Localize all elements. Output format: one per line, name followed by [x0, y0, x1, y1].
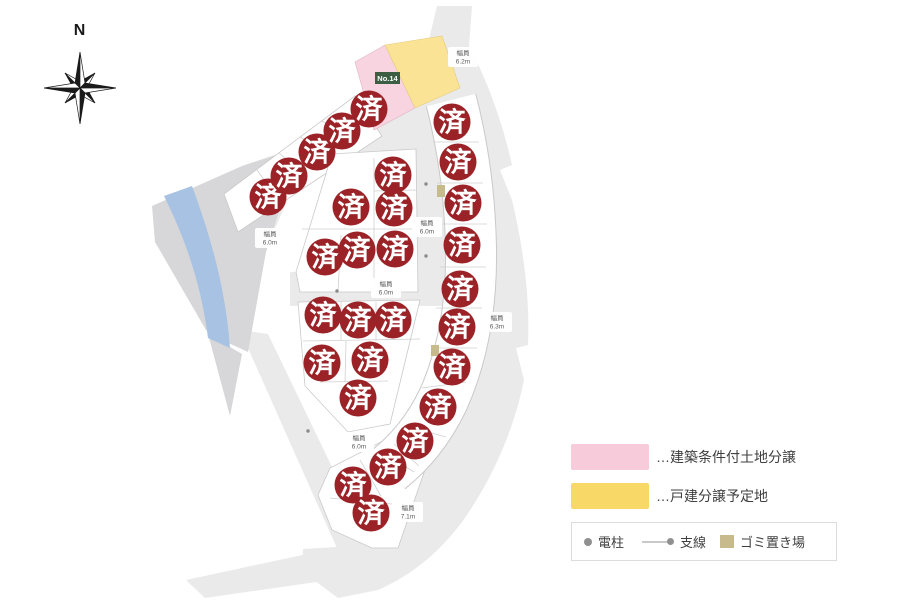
sold-marker: 済 — [304, 345, 341, 382]
sold-marker: 済 — [339, 232, 376, 269]
road-width-label: 幅員6.0m — [344, 432, 374, 452]
svg-text:幅員: 幅員 — [353, 433, 367, 442]
sold-marker-text: 済 — [345, 305, 373, 337]
sold-marker-text: 済 — [380, 160, 408, 192]
sold-marker-text: 済 — [310, 300, 338, 332]
sold-marker-text: 済 — [402, 426, 430, 458]
svg-text:6.0m: 6.0m — [420, 229, 434, 236]
road-width-label: 幅員6.2m — [448, 47, 478, 67]
sold-marker: 済 — [434, 104, 471, 141]
sold-marker: 済 — [307, 239, 344, 276]
road-width-label: 幅員7.1m — [393, 502, 423, 522]
sold-marker: 済 — [353, 495, 390, 532]
sold-marker: 済 — [397, 423, 434, 460]
compass-north-label: N — [28, 22, 132, 40]
svg-text:6.0m: 6.0m — [263, 240, 277, 247]
sold-marker-text: 済 — [358, 498, 386, 530]
sold-marker: 済 — [376, 190, 413, 227]
legend-color-swatch — [571, 483, 649, 509]
svg-text:幅員: 幅員 — [491, 313, 505, 322]
road-width-label: 幅員6.0m — [412, 217, 442, 237]
sold-marker: 済 — [444, 227, 481, 264]
sold-marker-text: 済 — [439, 352, 467, 384]
sold-marker-text: 済 — [357, 345, 385, 377]
sold-marker-text: 済 — [309, 348, 337, 380]
sold-marker: 済 — [445, 185, 482, 222]
sold-marker-text: 済 — [439, 107, 467, 139]
road-width-label: 幅員6.0m — [255, 228, 285, 248]
sold-marker-text: 済 — [276, 161, 304, 193]
sold-marker: 済 — [375, 157, 412, 194]
sold-marker: 済 — [271, 158, 308, 195]
sold-marker: 済 — [420, 389, 457, 426]
garbage-area-icon — [720, 535, 734, 548]
sold-marker-text: 済 — [344, 235, 372, 267]
svg-text:幅員: 幅員 — [402, 503, 416, 512]
legend-color-swatch — [571, 444, 649, 470]
legend-symbols-box: 電柱 支線 ゴミ置き場 — [571, 522, 837, 561]
svg-text:7.1m: 7.1m — [401, 514, 415, 521]
sold-marker: 済 — [440, 144, 477, 181]
svg-text:6.0m: 6.0m — [379, 290, 393, 297]
sold-marker-text: 済 — [447, 274, 475, 306]
svg-text:6.3m: 6.3m — [490, 324, 504, 331]
sold-marker: 済 — [340, 380, 377, 417]
sold-marker-text: 済 — [445, 147, 473, 179]
sold-marker: 済 — [370, 449, 407, 486]
sold-marker: 済 — [352, 342, 389, 379]
guy-wire-line-icon — [642, 541, 668, 543]
sold-marker: 済 — [351, 91, 388, 128]
svg-text:幅員: 幅員 — [457, 48, 471, 57]
sold-marker-text: 済 — [380, 305, 408, 337]
lot-number-badge[interactable]: No.14 — [375, 72, 400, 84]
road-width-label: 幅員6.0m — [371, 278, 401, 298]
legend-label: …建築条件付土地分譲 — [656, 447, 796, 467]
sold-marker-text: 済 — [381, 193, 409, 225]
sold-marker: 済 — [340, 302, 377, 339]
svg-text:幅員: 幅員 — [421, 218, 435, 227]
utility-pole-label: 電柱 — [598, 532, 624, 551]
svg-text:幅員: 幅員 — [380, 279, 394, 288]
utility-pole-icon — [584, 538, 592, 546]
sold-marker-text: 済 — [450, 188, 478, 220]
sold-marker-text: 済 — [345, 383, 373, 415]
compass: N — [28, 22, 132, 140]
sold-marker-text: 済 — [338, 192, 366, 224]
sold-marker-text: 済 — [312, 242, 340, 274]
sold-marker-text: 済 — [425, 392, 453, 424]
sold-marker-text: 済 — [375, 452, 403, 484]
sold-marker-text: 済 — [449, 230, 477, 262]
sold-marker: 済 — [377, 231, 414, 268]
svg-text:No.14: No.14 — [377, 74, 398, 83]
legend: …建築条件付土地分譲…戸建分譲予定地 電柱 支線 ゴミ置き場 — [571, 444, 871, 561]
compass-rose-icon — [28, 40, 132, 136]
sold-marker-text: 済 — [329, 116, 357, 148]
sold-marker: 済 — [442, 271, 479, 308]
sold-marker-text: 済 — [444, 312, 472, 344]
svg-text:6.0m: 6.0m — [352, 444, 366, 451]
sold-marker: 済 — [439, 309, 476, 346]
sold-marker: 済 — [305, 297, 342, 334]
site-plan-map: No.14 済済済済済済済済済済済済済済済済済済済済済済済済済済済済済 幅員6.… — [0, 0, 900, 600]
sold-marker-text: 済 — [382, 234, 410, 266]
svg-text:幅員: 幅員 — [264, 229, 278, 238]
guy-wire-label: 支線 — [680, 532, 706, 551]
sold-marker: 済 — [375, 302, 412, 339]
sold-marker: 済 — [434, 349, 471, 386]
legend-row: …建築条件付土地分譲 — [571, 444, 871, 470]
svg-text:6.2m: 6.2m — [456, 59, 470, 66]
sold-marker-text: 済 — [356, 94, 384, 126]
sold-marker: 済 — [333, 189, 370, 226]
guy-wire-dot-icon — [667, 538, 674, 545]
road-width-label: 幅員6.3m — [482, 312, 512, 332]
legend-row: …戸建分譲予定地 — [571, 483, 871, 509]
legend-label: …戸建分譲予定地 — [656, 486, 768, 506]
garbage-area-label: ゴミ置き場 — [740, 532, 805, 551]
